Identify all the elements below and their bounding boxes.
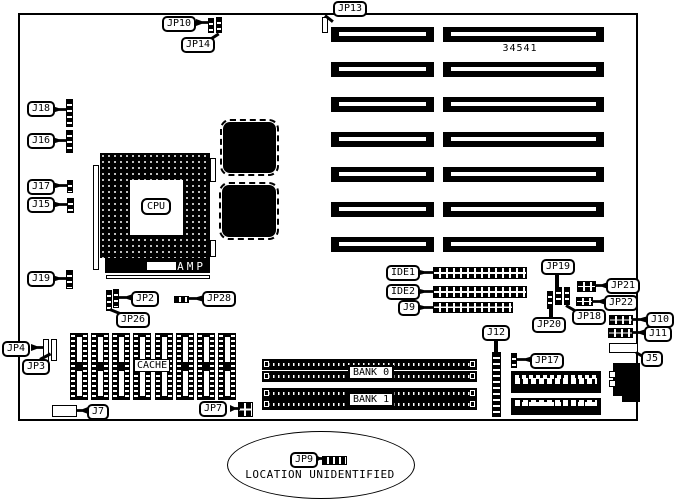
power-connector	[511, 398, 601, 415]
isa-slot	[331, 132, 434, 147]
cache-chip-column	[218, 333, 236, 400]
ide1-connector	[433, 267, 527, 279]
callout-j16: J16	[27, 133, 55, 149]
callout-jp17: JP17	[530, 353, 564, 369]
callout-j18: J18	[27, 101, 55, 117]
callout-jp9: JP9	[290, 452, 318, 468]
cache-chip-column	[112, 333, 130, 400]
keyboard-connector-base	[622, 396, 640, 402]
power-connector	[511, 371, 601, 393]
jp18-jumper	[564, 287, 570, 305]
isa-slot	[331, 237, 434, 252]
isa-slot	[443, 237, 604, 252]
callout-jp14: JP14	[181, 37, 215, 53]
cache-label: CACHE	[134, 359, 170, 372]
jp9-connector	[322, 456, 347, 465]
jp10-connector	[208, 18, 214, 33]
isa-slot	[331, 97, 434, 112]
jp17-jumper	[511, 353, 517, 368]
ide2-connector	[433, 286, 527, 298]
callout-j7: J7	[87, 404, 109, 420]
j5-connector	[609, 343, 638, 353]
isa-slot	[331, 167, 434, 182]
location-note: LOCATION UNIDENTIFIED	[227, 468, 413, 481]
callout-j15: J15	[27, 197, 55, 213]
callout-jp21: JP21	[606, 278, 640, 294]
cache-chip-column	[91, 333, 109, 400]
callout-j11: J11	[644, 326, 672, 342]
amp-connector-base	[106, 275, 210, 279]
cache-chip-column	[70, 333, 88, 400]
keyboard-connector	[613, 363, 640, 396]
isa-slot	[331, 62, 434, 77]
callout-jp19: JP19	[541, 259, 575, 275]
isa-slot	[443, 202, 604, 217]
cache-chip-column	[197, 333, 215, 400]
j18-connector	[66, 99, 73, 127]
callout-jp2: JP2	[131, 291, 159, 307]
keyboard-connector-pin	[609, 380, 616, 387]
isa-slot	[331, 202, 434, 217]
j11-connector	[608, 328, 633, 338]
isa-slot	[443, 97, 604, 112]
callout-j5: J5	[641, 351, 663, 367]
bank1-label: BANK 1	[348, 392, 394, 407]
isa-slot	[443, 132, 604, 147]
callout-jp22: JP22	[604, 295, 638, 311]
callout-jp20: JP20	[532, 317, 566, 333]
chipset-ic	[223, 122, 276, 173]
callout-j19: J19	[27, 271, 55, 287]
motherboard-diagram: 34541 CPU AMP CACHE BANK 0 BANK 1	[0, 0, 678, 501]
j12-connector	[492, 352, 501, 417]
jp21-connector	[577, 281, 596, 292]
callout-jp3: JP3	[22, 359, 50, 375]
amp-connector-window	[147, 262, 176, 270]
j9-connector	[433, 302, 513, 313]
jp19-jumper	[555, 287, 562, 305]
callout-j12: J12	[482, 325, 510, 341]
jp28-connector	[174, 296, 189, 303]
note-ellipse	[227, 431, 415, 499]
socket-lever	[93, 165, 99, 270]
jp3-connector	[51, 339, 57, 361]
jp14-connector	[216, 17, 222, 33]
jp2-connector	[113, 289, 119, 308]
j16-connector	[66, 130, 73, 153]
j7-connector	[52, 405, 77, 417]
socket-key-top	[210, 158, 216, 182]
callout-jp28: JP28	[202, 291, 236, 307]
j19-connector	[66, 270, 73, 289]
jp7-connector	[238, 402, 253, 417]
callout-jp10: JP10	[162, 16, 196, 32]
socket-key-bottom	[210, 240, 216, 257]
j15-connector	[67, 198, 74, 213]
isa-slot	[443, 62, 604, 77]
jp20-jumper	[547, 291, 553, 309]
chipset-ic	[222, 185, 276, 237]
callout-ide2: IDE2	[386, 284, 420, 300]
part-number: 34541	[490, 43, 550, 54]
amp-brand-text: AMP	[177, 260, 206, 273]
callout-jp26: JP26	[116, 312, 150, 328]
isa-slot	[443, 27, 604, 42]
isa-slot	[443, 167, 604, 182]
keyboard-connector-pin	[609, 371, 616, 378]
cpu-label: CPU	[141, 198, 171, 215]
callout-j17: J17	[27, 179, 55, 195]
cache-chip-column	[176, 333, 194, 400]
amp-connector: AMP	[105, 258, 210, 273]
callout-ide1: IDE1	[386, 265, 420, 281]
callout-jp7: JP7	[199, 401, 227, 417]
callout-jp4: JP4	[2, 341, 30, 357]
callout-jp13: JP13	[333, 1, 367, 17]
jp22-connector	[576, 297, 593, 306]
isa-slot	[331, 27, 434, 42]
j10-connector	[609, 315, 633, 325]
bank0-label: BANK 0	[348, 365, 394, 380]
callout-j9: J9	[398, 300, 420, 316]
callout-jp18: JP18	[572, 309, 606, 325]
